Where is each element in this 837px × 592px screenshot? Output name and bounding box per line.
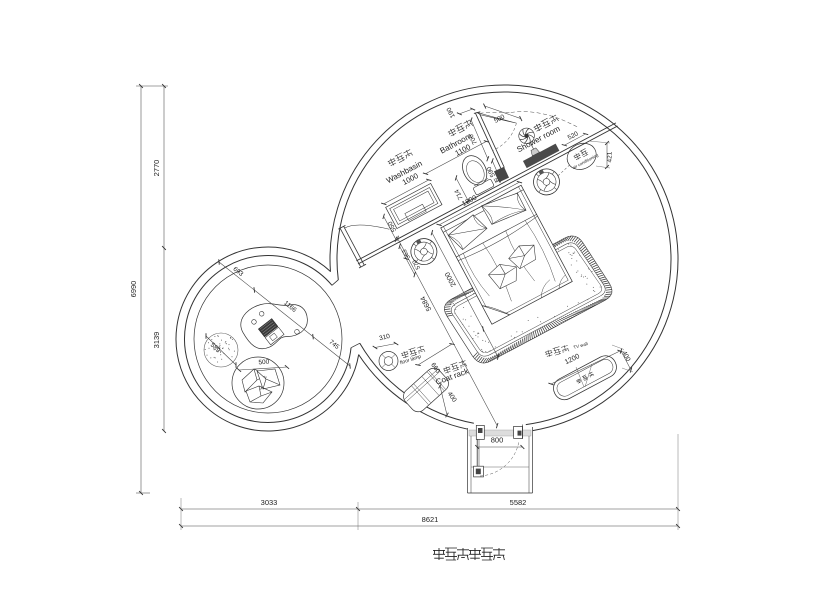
svg-text:421: 421	[607, 151, 614, 162]
svg-text:800: 800	[491, 436, 504, 445]
svg-text:2770: 2770	[152, 160, 161, 177]
svg-text:500: 500	[258, 359, 270, 367]
svg-text:3139: 3139	[152, 332, 161, 349]
svg-text:5582: 5582	[510, 498, 527, 507]
svg-text:8621: 8621	[422, 515, 439, 524]
svg-text:6990: 6990	[129, 281, 138, 298]
svg-text:3033: 3033	[261, 498, 278, 507]
